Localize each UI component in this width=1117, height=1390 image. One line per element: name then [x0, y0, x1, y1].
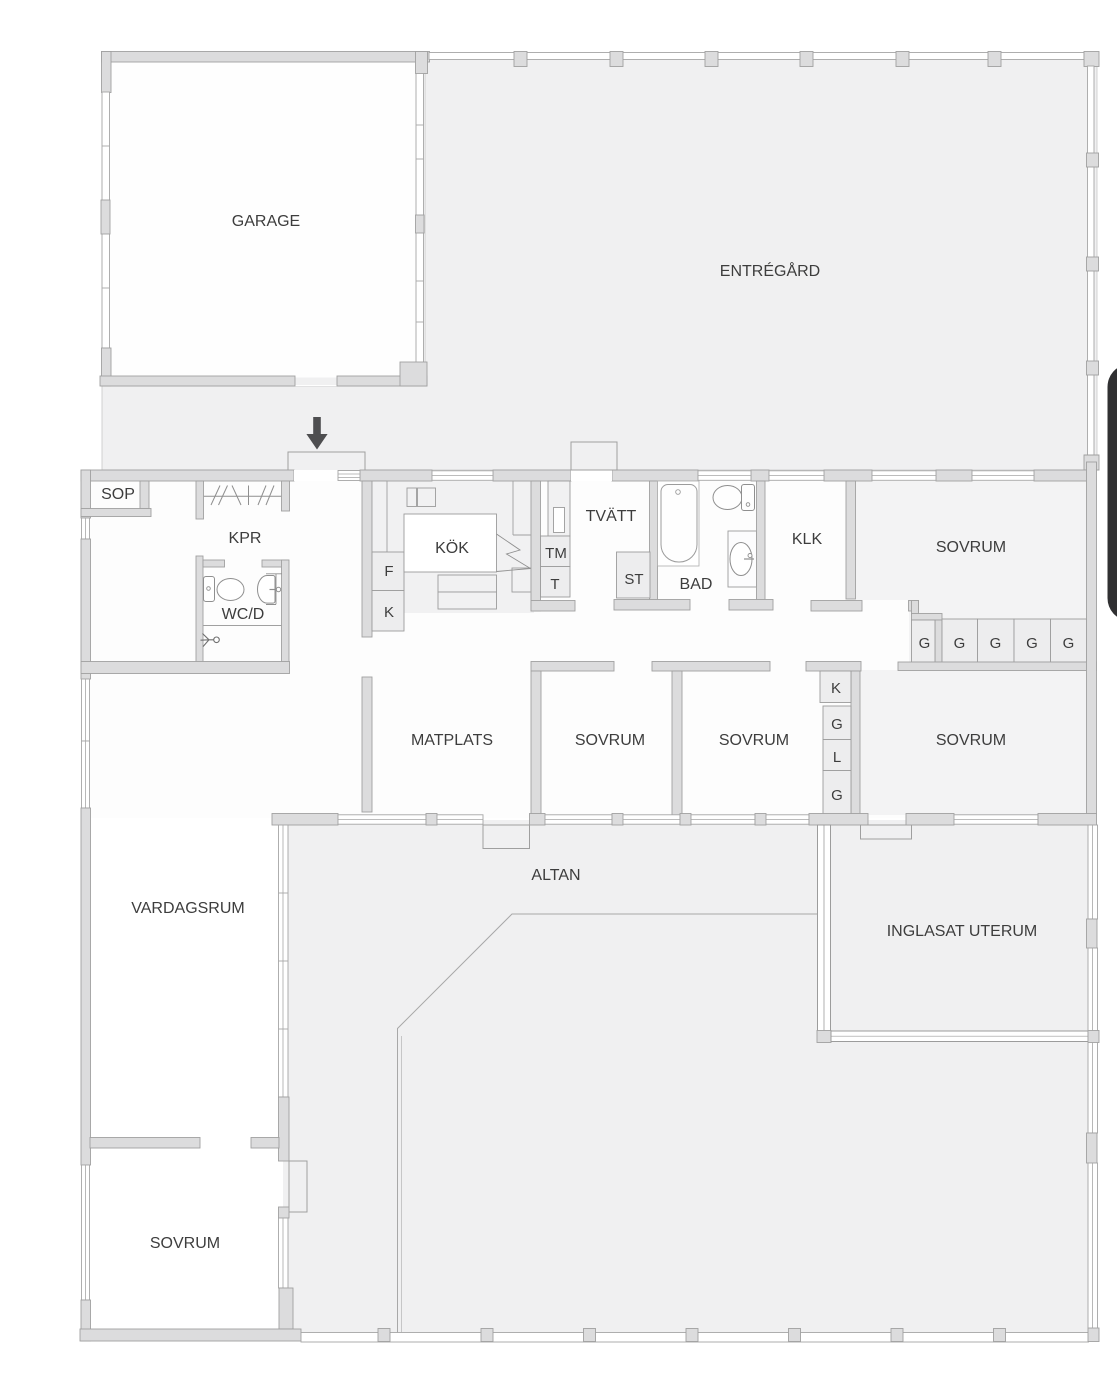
svg-text:KÖK: KÖK [435, 539, 469, 557]
svg-text:BAD: BAD [680, 576, 713, 593]
svg-text:G: G [1026, 635, 1038, 652]
svg-text:G: G [954, 635, 966, 652]
svg-text:ST: ST [624, 571, 643, 588]
svg-text:WC/D: WC/D [222, 606, 265, 623]
svg-text:SOP: SOP [101, 486, 135, 503]
svg-text:SOVRUM: SOVRUM [150, 1235, 220, 1252]
svg-text:G: G [831, 716, 843, 733]
svg-text:K: K [831, 680, 841, 697]
svg-text:G: G [990, 635, 1002, 652]
svg-text:GARAGE: GARAGE [232, 213, 300, 230]
svg-text:INGLASAT UTERUM: INGLASAT UTERUM [887, 923, 1038, 940]
svg-text:TM: TM [545, 545, 567, 562]
svg-text:ENTRÉGÅRD: ENTRÉGÅRD [720, 261, 820, 280]
svg-text:SOVRUM: SOVRUM [719, 732, 789, 749]
svg-text:SOVRUM: SOVRUM [936, 732, 1006, 749]
svg-text:L: L [833, 749, 841, 766]
svg-text:VARDAGSRUM: VARDAGSRUM [131, 900, 245, 917]
svg-text:ALTAN: ALTAN [531, 867, 580, 884]
svg-text:G: G [919, 635, 931, 652]
svg-text:SOVRUM: SOVRUM [575, 732, 645, 749]
svg-text:MATPLATS: MATPLATS [411, 732, 493, 749]
svg-text:SOVRUM: SOVRUM [936, 539, 1006, 556]
svg-text:K: K [384, 604, 394, 621]
svg-text:T: T [550, 576, 559, 593]
svg-text:G: G [1063, 635, 1075, 652]
svg-text:F: F [384, 563, 393, 580]
svg-text:TVÄTT: TVÄTT [586, 507, 637, 525]
svg-text:KPR: KPR [229, 530, 262, 547]
svg-text:KLK: KLK [792, 531, 823, 548]
svg-text:G: G [831, 787, 843, 804]
